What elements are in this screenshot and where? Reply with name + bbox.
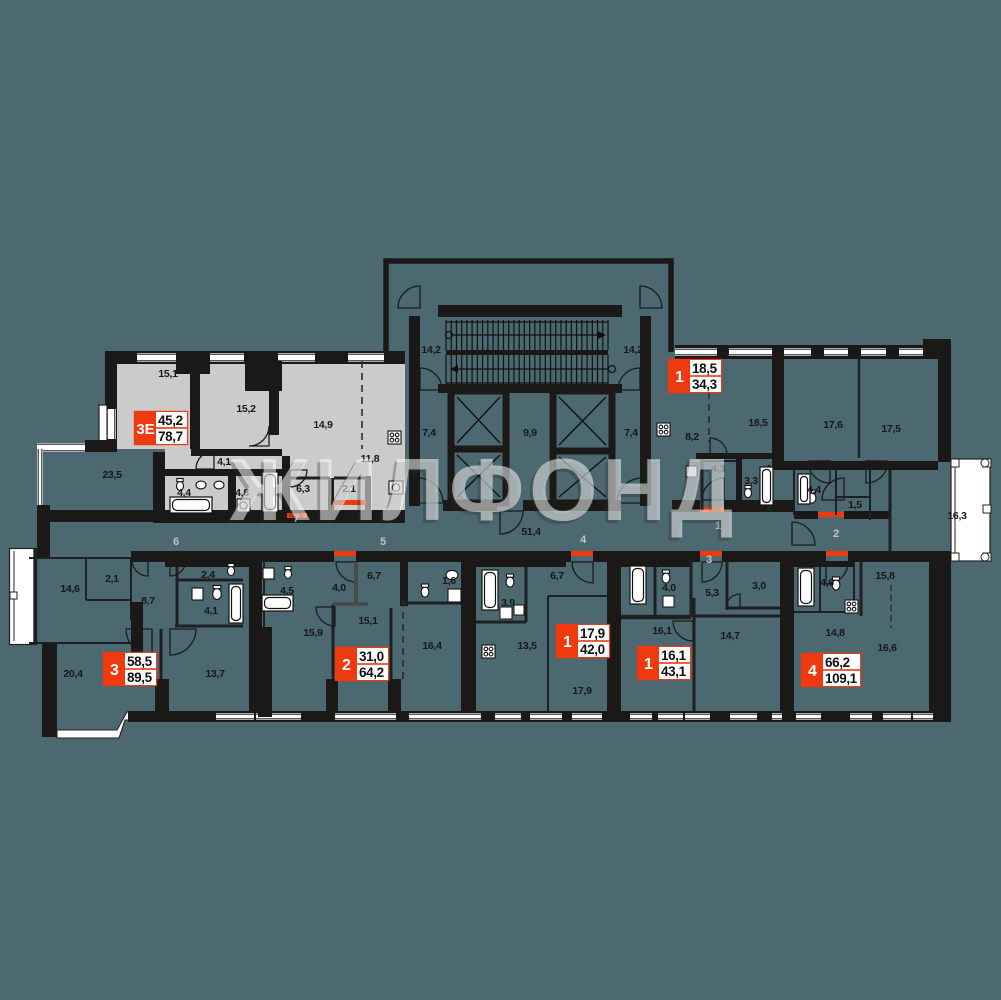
svg-text:1: 1 (675, 369, 684, 386)
svg-text:16,6: 16,6 (877, 642, 897, 654)
svg-text:43,1: 43,1 (661, 664, 687, 679)
svg-text:13,5: 13,5 (517, 640, 537, 652)
svg-text:ЖИЛФОНД: ЖИЛФОНД (229, 440, 740, 539)
svg-text:16,4: 16,4 (422, 640, 442, 652)
svg-text:7,4: 7,4 (422, 427, 436, 439)
svg-text:6: 6 (173, 536, 179, 548)
svg-text:3,0: 3,0 (752, 580, 766, 592)
svg-text:4,1: 4,1 (204, 605, 218, 617)
svg-text:34,3: 34,3 (692, 377, 718, 392)
svg-text:2: 2 (833, 528, 839, 540)
svg-text:4,0: 4,0 (332, 582, 346, 594)
svg-text:4,4: 4,4 (177, 487, 191, 499)
svg-text:15,1: 15,1 (358, 615, 378, 627)
svg-text:4: 4 (808, 663, 817, 680)
svg-text:17,9: 17,9 (580, 626, 605, 641)
svg-text:16,1: 16,1 (661, 648, 687, 663)
svg-text:9,9: 9,9 (523, 427, 537, 439)
svg-text:2,1: 2,1 (105, 573, 119, 585)
svg-text:18,5: 18,5 (748, 417, 768, 429)
svg-text:109,1: 109,1 (825, 671, 858, 686)
svg-text:17,5: 17,5 (881, 423, 901, 435)
svg-text:6,7: 6,7 (550, 570, 564, 582)
svg-text:20,4: 20,4 (63, 668, 83, 680)
svg-text:14,7: 14,7 (720, 630, 740, 642)
svg-text:58,5: 58,5 (127, 654, 153, 669)
svg-text:15,8: 15,8 (875, 570, 895, 582)
svg-text:3,3: 3,3 (744, 475, 758, 487)
svg-text:4,6: 4,6 (820, 577, 834, 589)
svg-text:16,3: 16,3 (947, 510, 967, 522)
svg-text:18,5: 18,5 (692, 361, 718, 376)
svg-text:3,9: 3,9 (501, 597, 515, 609)
svg-text:4,0: 4,0 (662, 582, 676, 594)
svg-text:1: 1 (563, 634, 572, 651)
svg-text:2: 2 (342, 657, 351, 674)
svg-text:23,5: 23,5 (102, 469, 122, 481)
svg-text:1,6: 1,6 (442, 575, 456, 587)
svg-text:78,7: 78,7 (158, 429, 183, 444)
svg-text:3: 3 (110, 662, 119, 679)
svg-text:45,2: 45,2 (158, 413, 183, 428)
svg-text:4,5: 4,5 (280, 585, 294, 597)
svg-text:8,7: 8,7 (141, 595, 155, 607)
svg-text:14,2: 14,2 (421, 344, 441, 356)
svg-text:42,0: 42,0 (580, 642, 605, 657)
svg-text:14,2: 14,2 (623, 344, 643, 356)
svg-text:14,8: 14,8 (825, 627, 845, 639)
svg-text:1,5: 1,5 (848, 499, 862, 511)
svg-text:15,2: 15,2 (236, 403, 256, 415)
svg-text:17,6: 17,6 (823, 419, 843, 431)
svg-text:89,5: 89,5 (127, 670, 153, 685)
svg-text:3Е: 3Е (136, 421, 154, 438)
svg-text:66,2: 66,2 (825, 655, 850, 670)
svg-text:14,9: 14,9 (313, 419, 333, 431)
svg-text:1: 1 (644, 656, 653, 673)
svg-text:2,4: 2,4 (201, 569, 215, 581)
svg-text:4,4: 4,4 (807, 484, 821, 496)
svg-text:64,2: 64,2 (359, 665, 384, 680)
svg-text:15,1: 15,1 (158, 368, 178, 380)
svg-text:7,4: 7,4 (624, 427, 638, 439)
svg-text:6,7: 6,7 (367, 570, 381, 582)
svg-text:31,0: 31,0 (359, 649, 384, 664)
svg-text:5,3: 5,3 (705, 587, 719, 599)
svg-text:13,7: 13,7 (205, 668, 225, 680)
svg-text:3: 3 (706, 554, 712, 566)
svg-text:17,9: 17,9 (572, 685, 592, 697)
svg-text:16,1: 16,1 (652, 625, 672, 637)
svg-text:14,6: 14,6 (60, 583, 80, 595)
svg-text:15,9: 15,9 (303, 627, 323, 639)
